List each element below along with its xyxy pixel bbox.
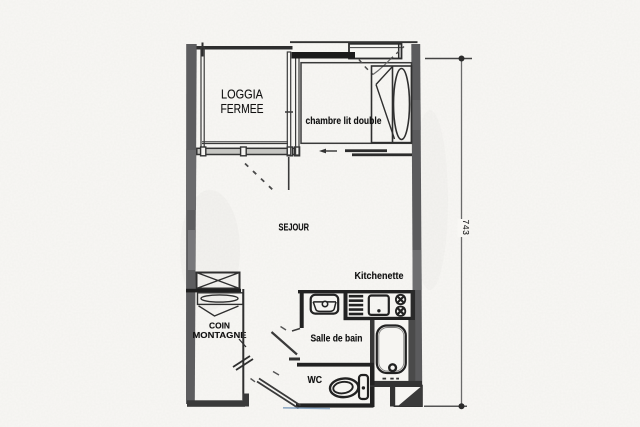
svg-text:743: 743 bbox=[461, 220, 471, 236]
svg-text:MONTAGNE: MONTAGNE bbox=[193, 330, 247, 340]
svg-text:SEJOUR: SEJOUR bbox=[279, 223, 310, 234]
svg-text:FERMEE: FERMEE bbox=[221, 101, 264, 116]
svg-text:COIN: COIN bbox=[209, 321, 230, 331]
svg-text:Salle de bain: Salle de bain bbox=[311, 334, 363, 345]
svg-text:WC: WC bbox=[308, 375, 323, 386]
svg-text:LOGGIA: LOGGIA bbox=[221, 87, 263, 102]
svg-text:chambre lit double: chambre lit double bbox=[306, 116, 382, 127]
svg-text:Kitchenette: Kitchenette bbox=[355, 271, 404, 282]
